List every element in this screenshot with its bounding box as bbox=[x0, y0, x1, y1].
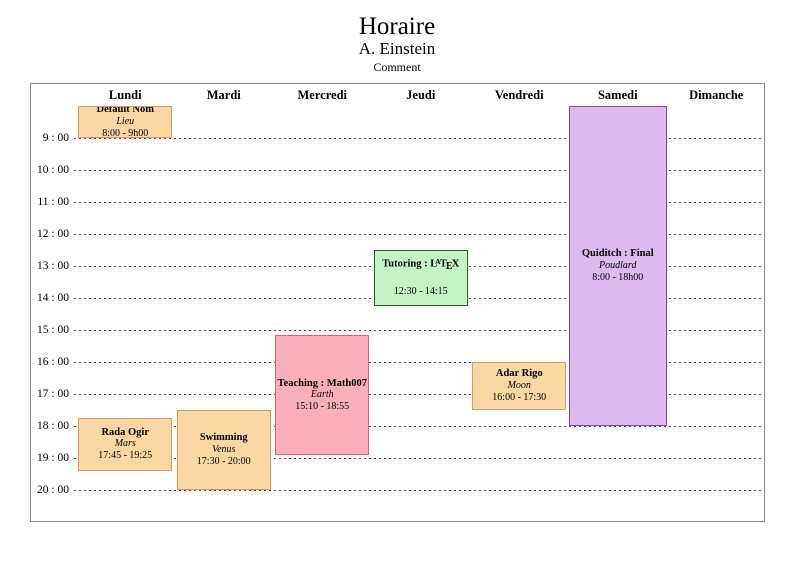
event-location: Venus bbox=[212, 444, 235, 456]
event-title: Teaching : Math007 bbox=[278, 378, 367, 390]
hour-label: 15 : 00 bbox=[31, 323, 69, 337]
title-block: Horaire A. Einstein Comment bbox=[0, 14, 794, 74]
hour-label: 11 : 00 bbox=[31, 195, 69, 209]
event-default-nom: Default NomLieu8:00 - 9h00 bbox=[78, 106, 172, 138]
day-header-samedi: Samedi bbox=[569, 88, 668, 104]
event-swimming: SwimmingVenus17:30 - 20:00 bbox=[177, 410, 271, 490]
hour-label: 9 : 00 bbox=[31, 131, 69, 145]
day-header-dimanche: Dimanche bbox=[667, 88, 766, 104]
event-time: 8:00 - 9h00 bbox=[102, 128, 148, 138]
event-tutoring-latex: Tutoring : LATEX12:30 - 14:15 bbox=[374, 250, 468, 306]
day-header-jeudi: Jeudi bbox=[372, 88, 471, 104]
event-title: Rada Ogir bbox=[101, 427, 149, 439]
event-location: Lieu bbox=[116, 116, 134, 128]
event-time: 8:00 - 18h00 bbox=[592, 272, 643, 284]
day-header-vendredi: Vendredi bbox=[470, 88, 569, 104]
page-subtitle: A. Einstein bbox=[0, 40, 794, 59]
hour-label: 14 : 00 bbox=[31, 291, 69, 305]
event-time: 12:30 - 14:15 bbox=[394, 286, 448, 298]
event-quiditch-final: Quiditch : FinalPoudlard8:00 - 18h00 bbox=[569, 106, 667, 426]
hour-label: 19 : 00 bbox=[31, 451, 69, 465]
event-title: Default Nom bbox=[97, 106, 154, 116]
event-title: Swimming bbox=[200, 432, 248, 444]
hour-gridline bbox=[74, 490, 761, 491]
event-title: Adar Rigo bbox=[496, 368, 543, 380]
event-title: Tutoring : LATEX bbox=[382, 258, 459, 273]
hour-label: 17 : 00 bbox=[31, 387, 69, 401]
event-time: 16:00 - 17:30 bbox=[492, 392, 546, 404]
hour-label: 10 : 00 bbox=[31, 163, 69, 177]
timetable-grid: LundiMardiMercrediJeudiVendrediSamediDim… bbox=[30, 83, 765, 522]
day-header-lundi: Lundi bbox=[76, 88, 175, 104]
event-time: 17:30 - 20:00 bbox=[197, 456, 251, 468]
hour-label: 13 : 00 bbox=[31, 259, 69, 273]
hour-label: 20 : 00 bbox=[31, 483, 69, 497]
hour-label: 12 : 00 bbox=[31, 227, 69, 241]
page-title: Horaire bbox=[0, 14, 794, 40]
event-location: Earth bbox=[311, 389, 334, 401]
day-header-mercredi: Mercredi bbox=[273, 88, 372, 104]
event-location: Mars bbox=[115, 438, 136, 450]
event-time: 17:45 - 19:25 bbox=[98, 450, 152, 462]
event-rada-ogir: Rada OgirMars17:45 - 19:25 bbox=[78, 418, 172, 471]
event-teaching-math007: Teaching : Math007Earth15:10 - 18:55 bbox=[275, 335, 369, 455]
hour-label: 16 : 00 bbox=[31, 355, 69, 369]
page-comment: Comment bbox=[0, 60, 794, 74]
day-header-mardi: Mardi bbox=[175, 88, 274, 104]
event-time: 15:10 - 18:55 bbox=[295, 401, 349, 413]
event-location: Moon bbox=[508, 380, 531, 392]
event-title: Quiditch : Final bbox=[582, 248, 654, 260]
event-adar-rigo: Adar RigoMoon16:00 - 17:30 bbox=[472, 362, 566, 410]
hour-label: 18 : 00 bbox=[31, 419, 69, 433]
event-location: Poudlard bbox=[599, 260, 636, 272]
